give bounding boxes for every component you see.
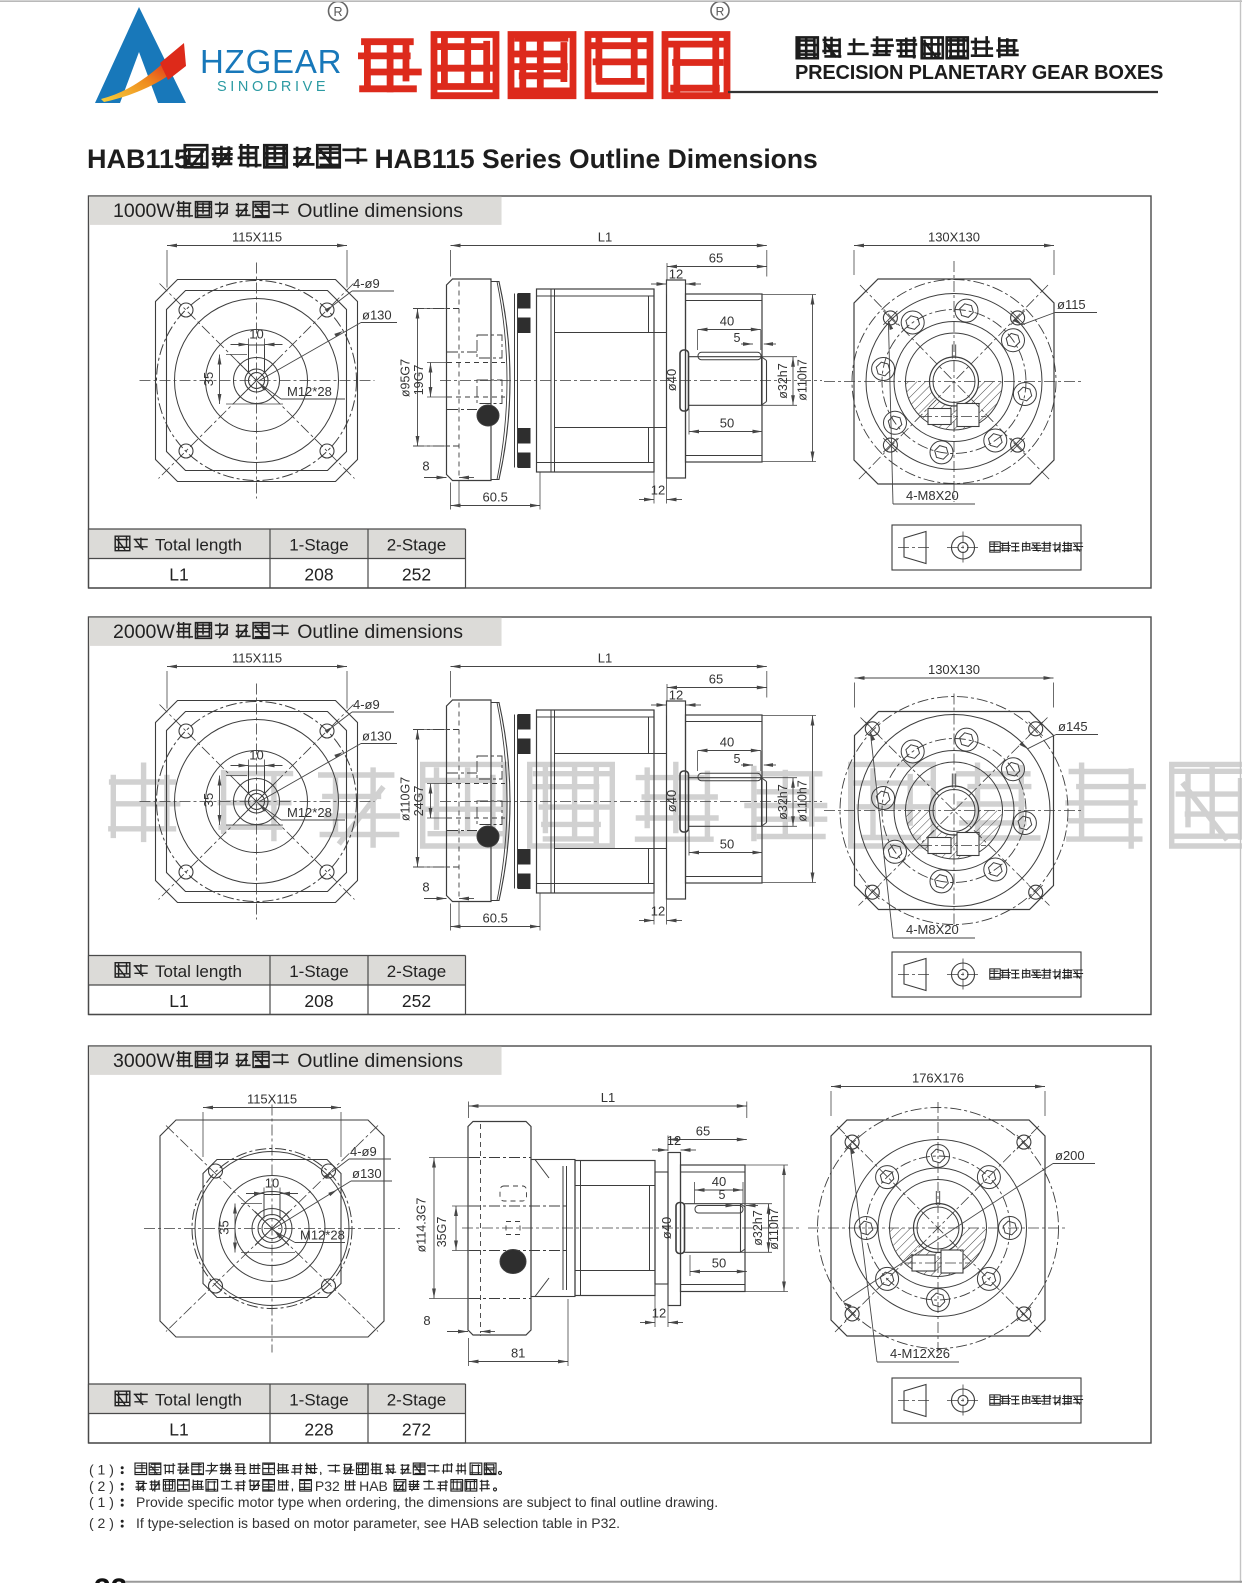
svg-text:65: 65: [709, 672, 723, 687]
svg-text:272: 272: [402, 1420, 431, 1440]
svg-text:1-Stage: 1-Stage: [289, 536, 349, 555]
svg-text:130X130: 130X130: [928, 230, 980, 245]
svg-text:5: 5: [734, 752, 741, 766]
svg-text:( 2 ): ( 2 ): [89, 1515, 114, 1531]
svg-text:R: R: [333, 5, 342, 19]
svg-text:Total length: Total length: [155, 1391, 242, 1410]
svg-text:ø110G7: ø110G7: [399, 777, 413, 821]
svg-text:M12*28: M12*28: [287, 805, 332, 820]
svg-text:ø130: ø130: [352, 1166, 382, 1181]
svg-text:35: 35: [201, 372, 216, 386]
svg-text:12: 12: [667, 1133, 681, 1148]
svg-text:L1: L1: [169, 565, 188, 585]
svg-text:32: 32: [94, 1573, 127, 1583]
svg-text:130X130: 130X130: [928, 662, 980, 677]
svg-text:ø110h7: ø110h7: [796, 359, 810, 401]
svg-text:ø110h7: ø110h7: [767, 1208, 781, 1250]
svg-text:8: 8: [422, 459, 429, 474]
svg-text:12: 12: [652, 1306, 666, 1321]
svg-text:2-Stage: 2-Stage: [387, 536, 447, 555]
svg-text:4-ø9: 4-ø9: [353, 276, 380, 291]
svg-text:ø200: ø200: [1055, 1148, 1085, 1163]
svg-text:252: 252: [402, 991, 431, 1011]
svg-text:50: 50: [720, 416, 734, 431]
svg-text:SINODRIVE: SINODRIVE: [217, 79, 329, 95]
svg-text:12: 12: [651, 904, 665, 919]
svg-text:3000W: 3000W: [113, 1050, 175, 1072]
svg-text:4-ø9: 4-ø9: [353, 697, 380, 712]
svg-text:ø40: ø40: [659, 1217, 674, 1239]
svg-text:65: 65: [696, 1124, 710, 1139]
svg-text:8: 8: [422, 880, 429, 895]
svg-text:5: 5: [719, 1188, 726, 1202]
svg-text:P32: P32: [315, 1478, 340, 1494]
svg-text:M12*28: M12*28: [300, 1228, 345, 1243]
svg-text:65: 65: [709, 251, 723, 266]
svg-text:12: 12: [651, 483, 665, 498]
svg-text:PRECISION PLANETARY GEAR BOXES: PRECISION PLANETARY GEAR BOXES: [795, 62, 1163, 84]
svg-text:( 1 ): ( 1 ): [89, 1494, 114, 1510]
svg-text:Total length: Total length: [155, 536, 242, 555]
svg-text:2-Stage: 2-Stage: [387, 962, 447, 981]
svg-text:2000W: 2000W: [113, 621, 175, 643]
svg-text:ø95G7: ø95G7: [399, 359, 413, 397]
svg-text:ø32h7: ø32h7: [751, 1210, 765, 1245]
svg-text:Outline dimensions: Outline dimensions: [297, 1050, 463, 1072]
svg-text:4-M12X26: 4-M12X26: [890, 1346, 950, 1361]
svg-text:208: 208: [304, 565, 333, 585]
svg-text:8: 8: [423, 1313, 430, 1328]
svg-text:ø32h7: ø32h7: [776, 363, 790, 398]
svg-text:L1: L1: [598, 230, 612, 245]
svg-text:1000W: 1000W: [113, 200, 175, 222]
svg-text:HZGEAR: HZGEAR: [200, 43, 342, 80]
svg-text:Total length: Total length: [155, 962, 242, 981]
svg-text:ø40: ø40: [664, 790, 679, 812]
svg-text:81: 81: [511, 1346, 525, 1361]
svg-text:4-M8X20: 4-M8X20: [906, 922, 959, 937]
svg-text:R: R: [716, 5, 725, 19]
svg-text:1-Stage: 1-Stage: [289, 1391, 349, 1410]
svg-text:208: 208: [304, 991, 333, 1011]
svg-text:HAB: HAB: [359, 1478, 388, 1494]
svg-text:228: 228: [304, 1420, 333, 1440]
svg-text:4-M8X20: 4-M8X20: [906, 488, 959, 503]
svg-text:115X115: 115X115: [247, 1092, 297, 1107]
svg-text:115X115: 115X115: [232, 651, 282, 666]
svg-text:24G7: 24G7: [412, 786, 426, 817]
svg-text:4-ø9: 4-ø9: [350, 1144, 377, 1159]
svg-text:ø130: ø130: [362, 729, 392, 744]
svg-text:Outline dimensions: Outline dimensions: [297, 200, 463, 222]
svg-text:ø114.3G7: ø114.3G7: [415, 1198, 429, 1253]
svg-text:M12*28: M12*28: [287, 384, 332, 399]
svg-text:Provide specific motor type wh: Provide specific motor type when orderin…: [136, 1494, 718, 1510]
svg-text:12: 12: [669, 688, 683, 703]
svg-text:HAB115 Series Outline Dimensio: HAB115 Series Outline Dimensions: [375, 144, 818, 174]
svg-text:252: 252: [402, 565, 431, 585]
svg-text:40: 40: [720, 314, 734, 329]
svg-text:35G7: 35G7: [435, 1217, 449, 1248]
svg-text:L1: L1: [169, 991, 188, 1011]
svg-text:L1: L1: [601, 1090, 615, 1105]
svg-text:10: 10: [265, 1176, 279, 1191]
svg-text:35: 35: [217, 1220, 232, 1234]
svg-text:ø130: ø130: [362, 308, 392, 323]
svg-text:2-Stage: 2-Stage: [387, 1391, 447, 1410]
svg-text:12: 12: [669, 267, 683, 282]
svg-text:Outline dimensions: Outline dimensions: [297, 621, 463, 643]
svg-text:10: 10: [249, 327, 263, 342]
svg-text:115X115: 115X115: [232, 230, 282, 245]
svg-text:176X176: 176X176: [912, 1071, 964, 1086]
svg-text:50: 50: [712, 1256, 726, 1271]
svg-text:40: 40: [712, 1174, 726, 1189]
svg-text:HAB115: HAB115: [87, 144, 189, 174]
svg-text:( 1 ): ( 1 ): [89, 1462, 114, 1478]
svg-text:L1: L1: [169, 1420, 188, 1440]
svg-text:10: 10: [249, 748, 263, 763]
svg-text:60.5: 60.5: [483, 490, 508, 505]
svg-text:40: 40: [720, 735, 734, 750]
svg-text:ø40: ø40: [664, 369, 679, 391]
svg-text:ø32h7: ø32h7: [776, 784, 790, 819]
svg-text:( 2 ): ( 2 ): [89, 1478, 114, 1494]
svg-text:50: 50: [720, 837, 734, 852]
svg-text:ø110h7: ø110h7: [796, 780, 810, 822]
svg-text:1-Stage: 1-Stage: [289, 962, 349, 981]
svg-text:19G7: 19G7: [412, 365, 426, 396]
svg-text:ø115: ø115: [1057, 297, 1086, 312]
svg-text:35: 35: [201, 793, 216, 807]
svg-text:If type-selection is based on: If type-selection is based on motor para…: [136, 1515, 620, 1531]
svg-text:L1: L1: [598, 651, 612, 666]
svg-text:5: 5: [734, 331, 741, 345]
svg-text:60.5: 60.5: [483, 911, 508, 926]
svg-text:ø145: ø145: [1058, 719, 1088, 734]
